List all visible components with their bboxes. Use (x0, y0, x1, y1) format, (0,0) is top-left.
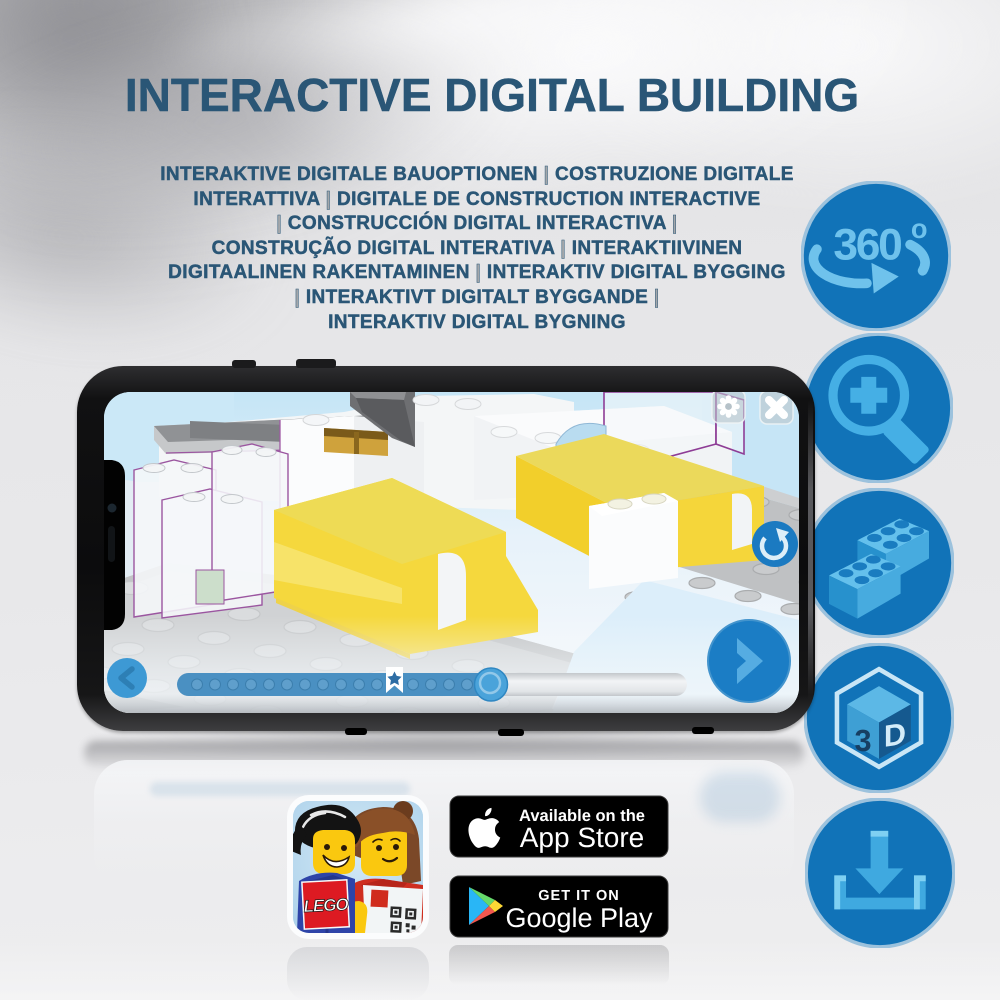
svg-text:LEGO: LEGO (303, 895, 349, 916)
svg-text:D: D (884, 716, 906, 754)
svg-text:Google Play: Google Play (505, 903, 653, 933)
svg-text:GET IT ON: GET IT ON (538, 888, 620, 904)
svg-text:3: 3 (855, 724, 872, 758)
svg-text:App Store: App Store (520, 822, 645, 853)
svg-text:360: 360 (833, 221, 902, 270)
svg-text:o: o (911, 214, 928, 245)
